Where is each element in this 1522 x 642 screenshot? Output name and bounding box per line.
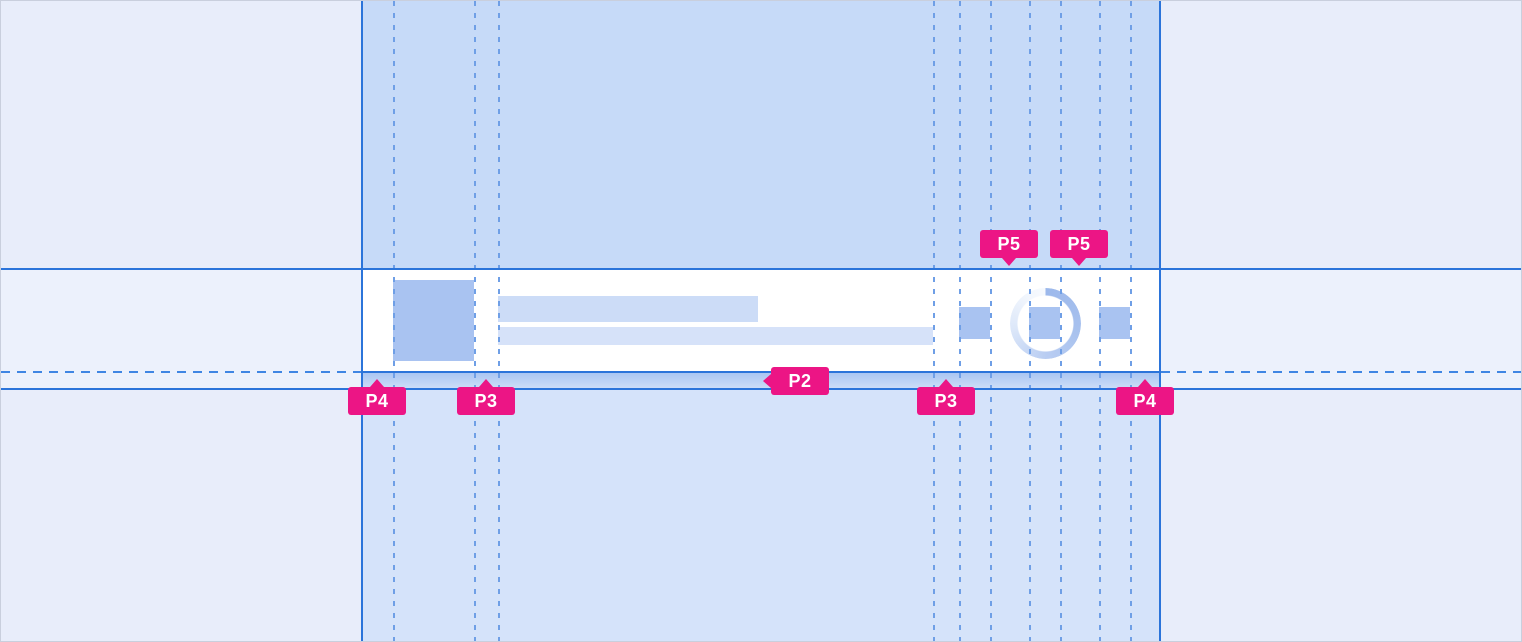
column-highlight-bottom [362,389,1160,642]
vertical-guide-icon2-left [1029,1,1031,642]
label-arrow-down-p5-first [1002,258,1016,266]
label-arrow-up-p4-left [370,379,384,387]
design-spec-canvas: P4 P3 P3 P4 P5 P5 P2 [0,0,1522,642]
label-arrow-up-p4-right [1138,379,1152,387]
title-placeholder-bar [498,296,758,322]
vertical-guide-icon3-left [1099,1,1101,642]
column-left-boundary-line [361,1,363,642]
horizontal-guide-left [1,371,362,373]
spinner-ring-icon [1010,288,1081,359]
row-content-bottom-line [362,371,1160,373]
action-icon-placeholder-3 [1099,307,1130,339]
row-top-boundary-line [1,268,1522,270]
vertical-guide-text-left [498,1,500,642]
padding-label-p5-second: P5 [1050,230,1108,258]
vertical-guide-icon1-right [990,1,992,642]
label-arrow-down-p5-second [1072,258,1086,266]
subtitle-placeholder-bar [498,327,933,345]
padding-label-p4-left: P4 [348,387,406,415]
padding-label-p3-left: P3 [457,387,515,415]
label-arrow-up-p3-left [479,379,493,387]
column-highlight-top [362,1,1160,269]
avatar-placeholder [393,280,474,361]
horizontal-guide-right [1161,371,1522,373]
vertical-guide-text-right [933,1,935,642]
vertical-guide-icon3-right [1130,1,1132,642]
padding-label-p4-right: P4 [1116,387,1174,415]
label-arrow-left-p2 [763,374,771,388]
padding-label-p3-right: P3 [917,387,975,415]
vertical-guide-icon1-left [959,1,961,642]
label-arrow-up-p3-right [939,379,953,387]
padding-label-p5-first: P5 [980,230,1038,258]
vertical-guide-avatar-right [474,1,476,642]
vertical-guide-avatar-left [393,1,395,642]
row-bottom-boundary-line [1,388,1522,390]
column-right-boundary-line [1159,1,1161,642]
vertical-guide-icon2-right [1060,1,1062,642]
padding-label-p2: P2 [771,367,829,395]
action-icon-placeholder-1 [959,307,990,339]
